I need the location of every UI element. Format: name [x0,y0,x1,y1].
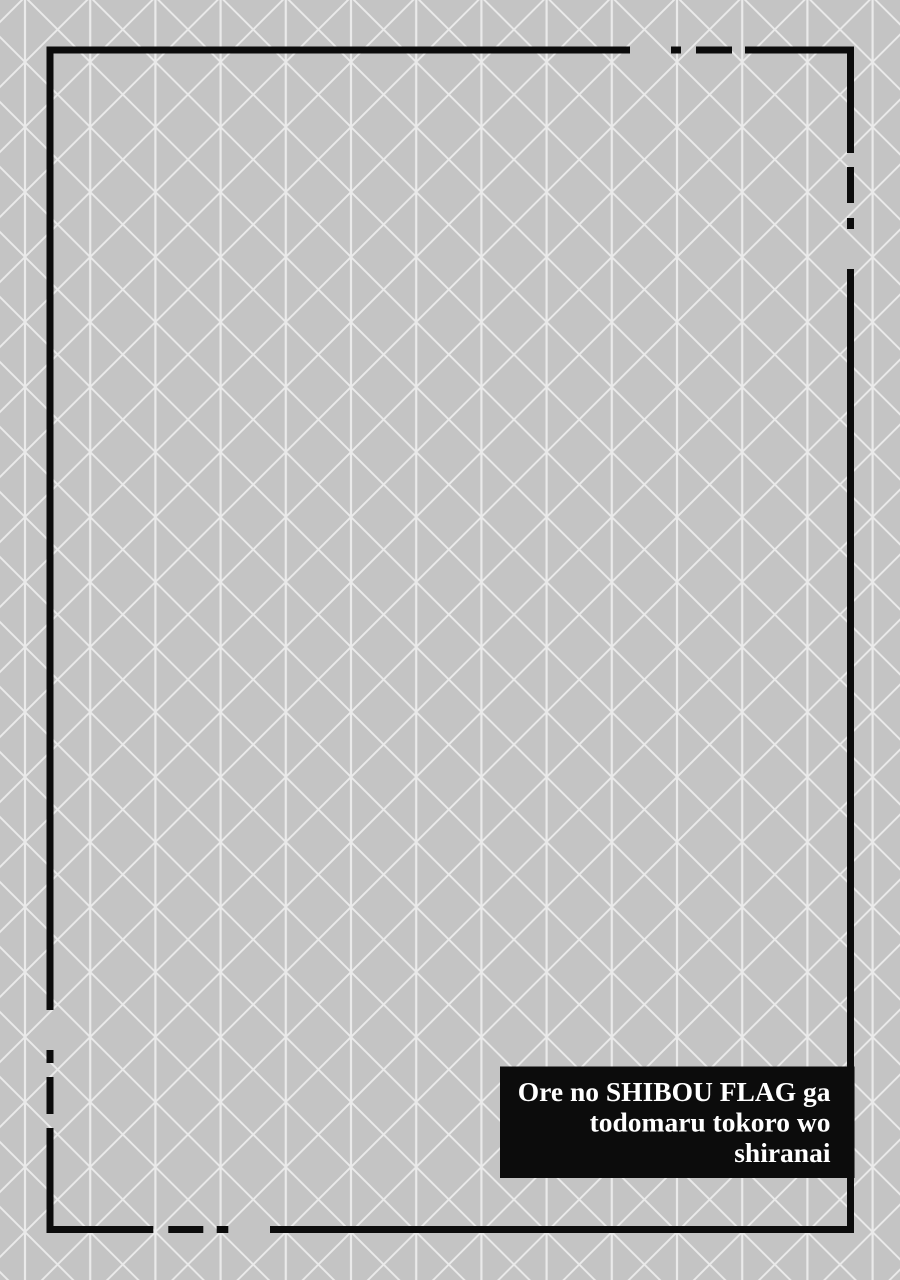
svg-text:Ore no SHIBOU FLAG ga: Ore no SHIBOU FLAG ga [518,1076,831,1107]
svg-text:shiranai: shiranai [734,1137,831,1168]
svg-text:todomaru tokoro wo: todomaru tokoro wo [590,1107,831,1138]
